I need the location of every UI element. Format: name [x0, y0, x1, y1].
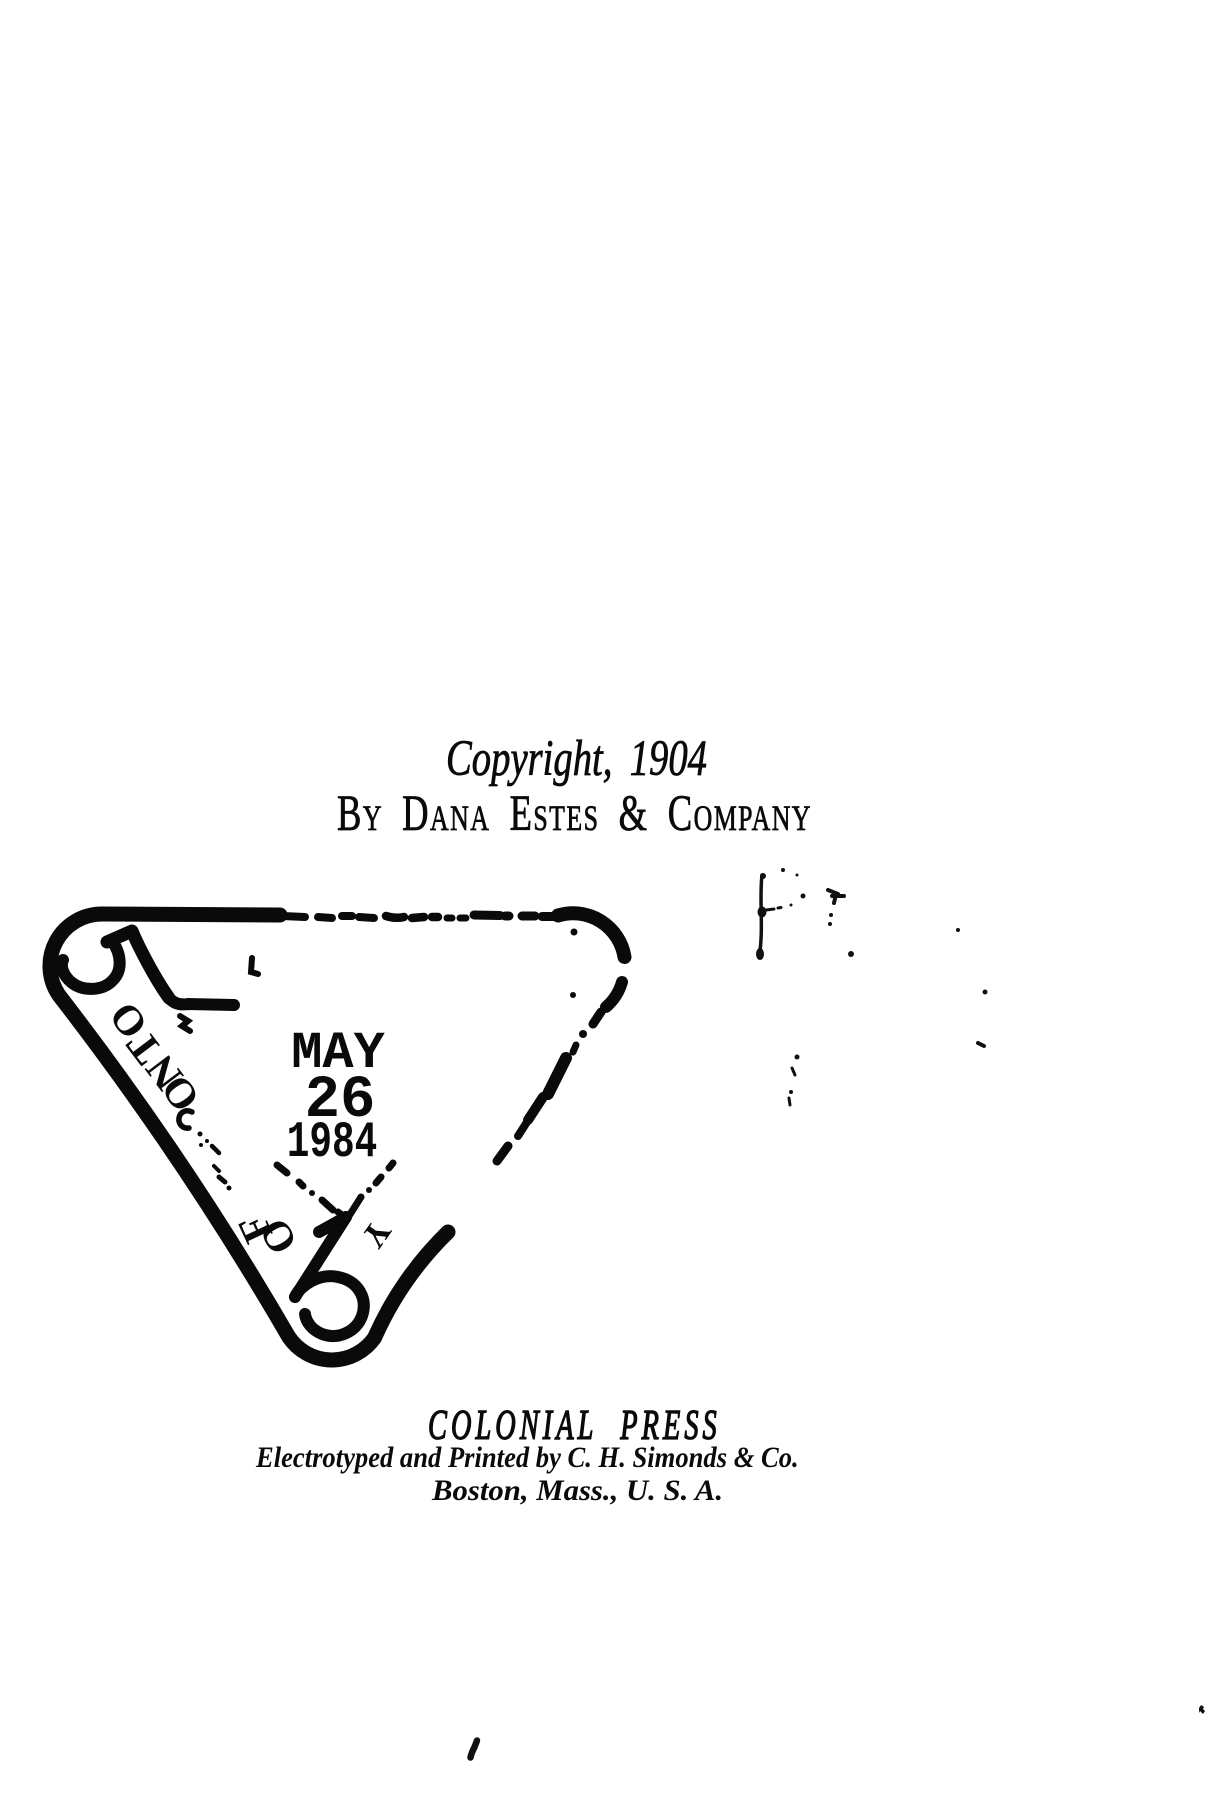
svg-text:1984: 1984	[287, 1115, 378, 1172]
svg-text:Y: Y	[354, 1213, 398, 1254]
